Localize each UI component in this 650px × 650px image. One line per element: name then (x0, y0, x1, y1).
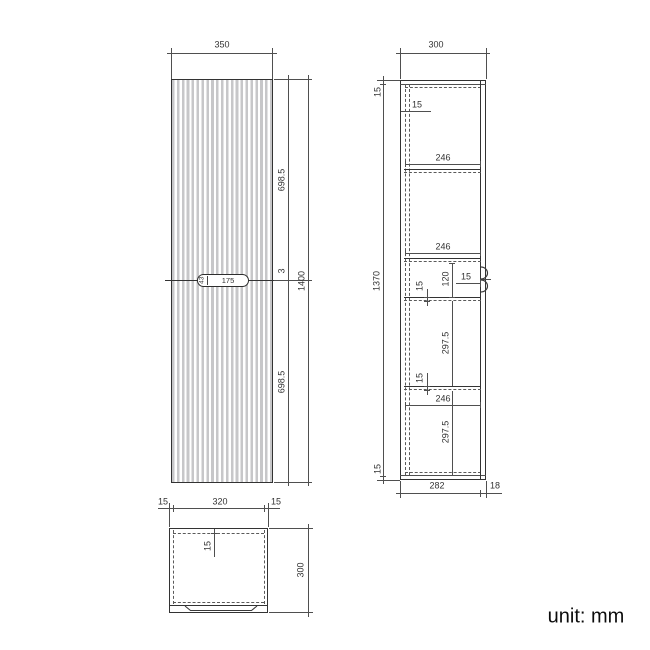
dimension-tick (480, 402, 481, 408)
dimension-tick (264, 505, 265, 512)
dimension-tick (449, 297, 455, 298)
shelf-line (404, 386, 481, 387)
leader-line (401, 111, 431, 112)
dimension-tick (480, 490, 481, 497)
dimension-line (396, 53, 490, 54)
dimension-line (405, 253, 480, 254)
back-panel-hidden-line (409, 84, 410, 475)
side-panel-hidden-line (264, 530, 265, 604)
extension-line (274, 79, 312, 80)
door-back-line (169, 605, 268, 606)
side-door-thickness-label: 15 (461, 273, 471, 282)
handle-recess: 43 175 (197, 274, 249, 287)
dimension-tick (380, 84, 386, 85)
front-door-top-label: 698.5 (278, 169, 287, 192)
drawing-curves (0, 0, 650, 650)
extension-line (486, 481, 487, 498)
side-bottom-panel-label: 15 (374, 464, 383, 474)
dimension-line (158, 508, 280, 509)
top-right-panel-label: 15 (271, 498, 281, 507)
side-shelf-thickness-2-label: 15 (416, 373, 425, 383)
top-back-panel-label: 15 (204, 541, 213, 551)
extension-line (169, 503, 170, 527)
side-shelf-depth-3-label: 246 (435, 395, 450, 404)
side-door-depth-label: 18 (490, 482, 500, 491)
extension-line (269, 528, 313, 529)
dimension-tick (405, 161, 406, 167)
shelf-line (404, 297, 481, 298)
dimension-line (167, 53, 277, 54)
bottom-panel-line (400, 475, 486, 476)
top-depth-label: 300 (297, 562, 306, 577)
side-body-height-label: 1370 (373, 271, 382, 291)
side-shelf-thickness-1-label: 15 (416, 281, 425, 291)
dimension-line (405, 164, 480, 165)
dimension-tick (424, 386, 430, 387)
dimension-tick (480, 250, 481, 256)
dimension-line (308, 524, 309, 617)
door-hidden-line (173, 602, 264, 603)
side-body-depth-label: 282 (429, 482, 444, 491)
extension-line (274, 482, 312, 483)
dimension-tick (424, 301, 430, 302)
dimension-tick (405, 250, 406, 256)
side-compartment-1-label: 297.5 (442, 332, 451, 355)
dimension-tick (424, 390, 430, 391)
shelf-line (404, 258, 481, 259)
dimension-line (452, 301, 453, 386)
dimension-line (288, 75, 289, 486)
handle-width-label: 175 (208, 277, 248, 285)
side-depth-label: 300 (428, 41, 443, 50)
extension-line (269, 612, 313, 613)
door-gap-line (480, 279, 491, 280)
front-door-bottom-label: 698.5 (278, 371, 287, 394)
back-panel-hidden-line (405, 84, 406, 475)
side-niche-label: 120 (442, 271, 451, 286)
unit-label: unit: mm (548, 606, 625, 629)
shelf-hidden-line (404, 261, 481, 262)
dimension-tick (480, 280, 481, 287)
front-width-label: 350 (214, 41, 229, 50)
shelf-line (404, 169, 481, 170)
dimension-line (383, 76, 384, 484)
dimension-line (405, 405, 480, 406)
top-panel-line (400, 84, 486, 85)
hidden-line (405, 472, 481, 473)
side-back-panel-label: 15 (412, 101, 422, 110)
extension-line (400, 481, 401, 498)
shelf-hidden-line (404, 172, 481, 173)
side-panel-hidden-line (173, 530, 174, 604)
dimension-line (456, 283, 480, 284)
dimension-tick (173, 505, 174, 512)
front-height-label: 1400 (298, 271, 307, 291)
side-shelf-depth-1-label: 246 (435, 154, 450, 163)
shelf-hidden-line (404, 389, 481, 390)
extension-line (377, 80, 400, 81)
front-door-gap-label: 3 (278, 268, 287, 273)
dimension-tick (380, 476, 386, 477)
handle-height-label: 43 (199, 276, 206, 285)
technical-drawing-cabinet: 43 175 350 698.5 3 698.5 1400 (0, 0, 650, 650)
top-interior-width-label: 320 (212, 498, 227, 507)
extension-line (377, 480, 400, 481)
extension-line (268, 503, 269, 527)
top-cabinet-outline (169, 528, 268, 613)
dimension-line (427, 373, 428, 395)
dimension-tick (405, 402, 406, 408)
dimension-line (396, 493, 502, 494)
back-panel-hidden-line (173, 533, 264, 534)
side-shelf-depth-2-label: 246 (435, 243, 450, 252)
dimension-tick (424, 297, 430, 298)
shelf-hidden-line (404, 300, 481, 301)
dimension-tick (480, 161, 481, 167)
dimension-line (452, 391, 453, 476)
dimension-tick (449, 263, 455, 264)
side-top-panel-label: 15 (374, 87, 383, 97)
hidden-line (405, 87, 481, 88)
dimension-line (452, 263, 453, 297)
dimension-tick (211, 533, 217, 534)
top-left-panel-label: 15 (158, 498, 168, 507)
side-compartment-2-label: 297.5 (442, 421, 451, 444)
dimension-line (308, 75, 309, 486)
